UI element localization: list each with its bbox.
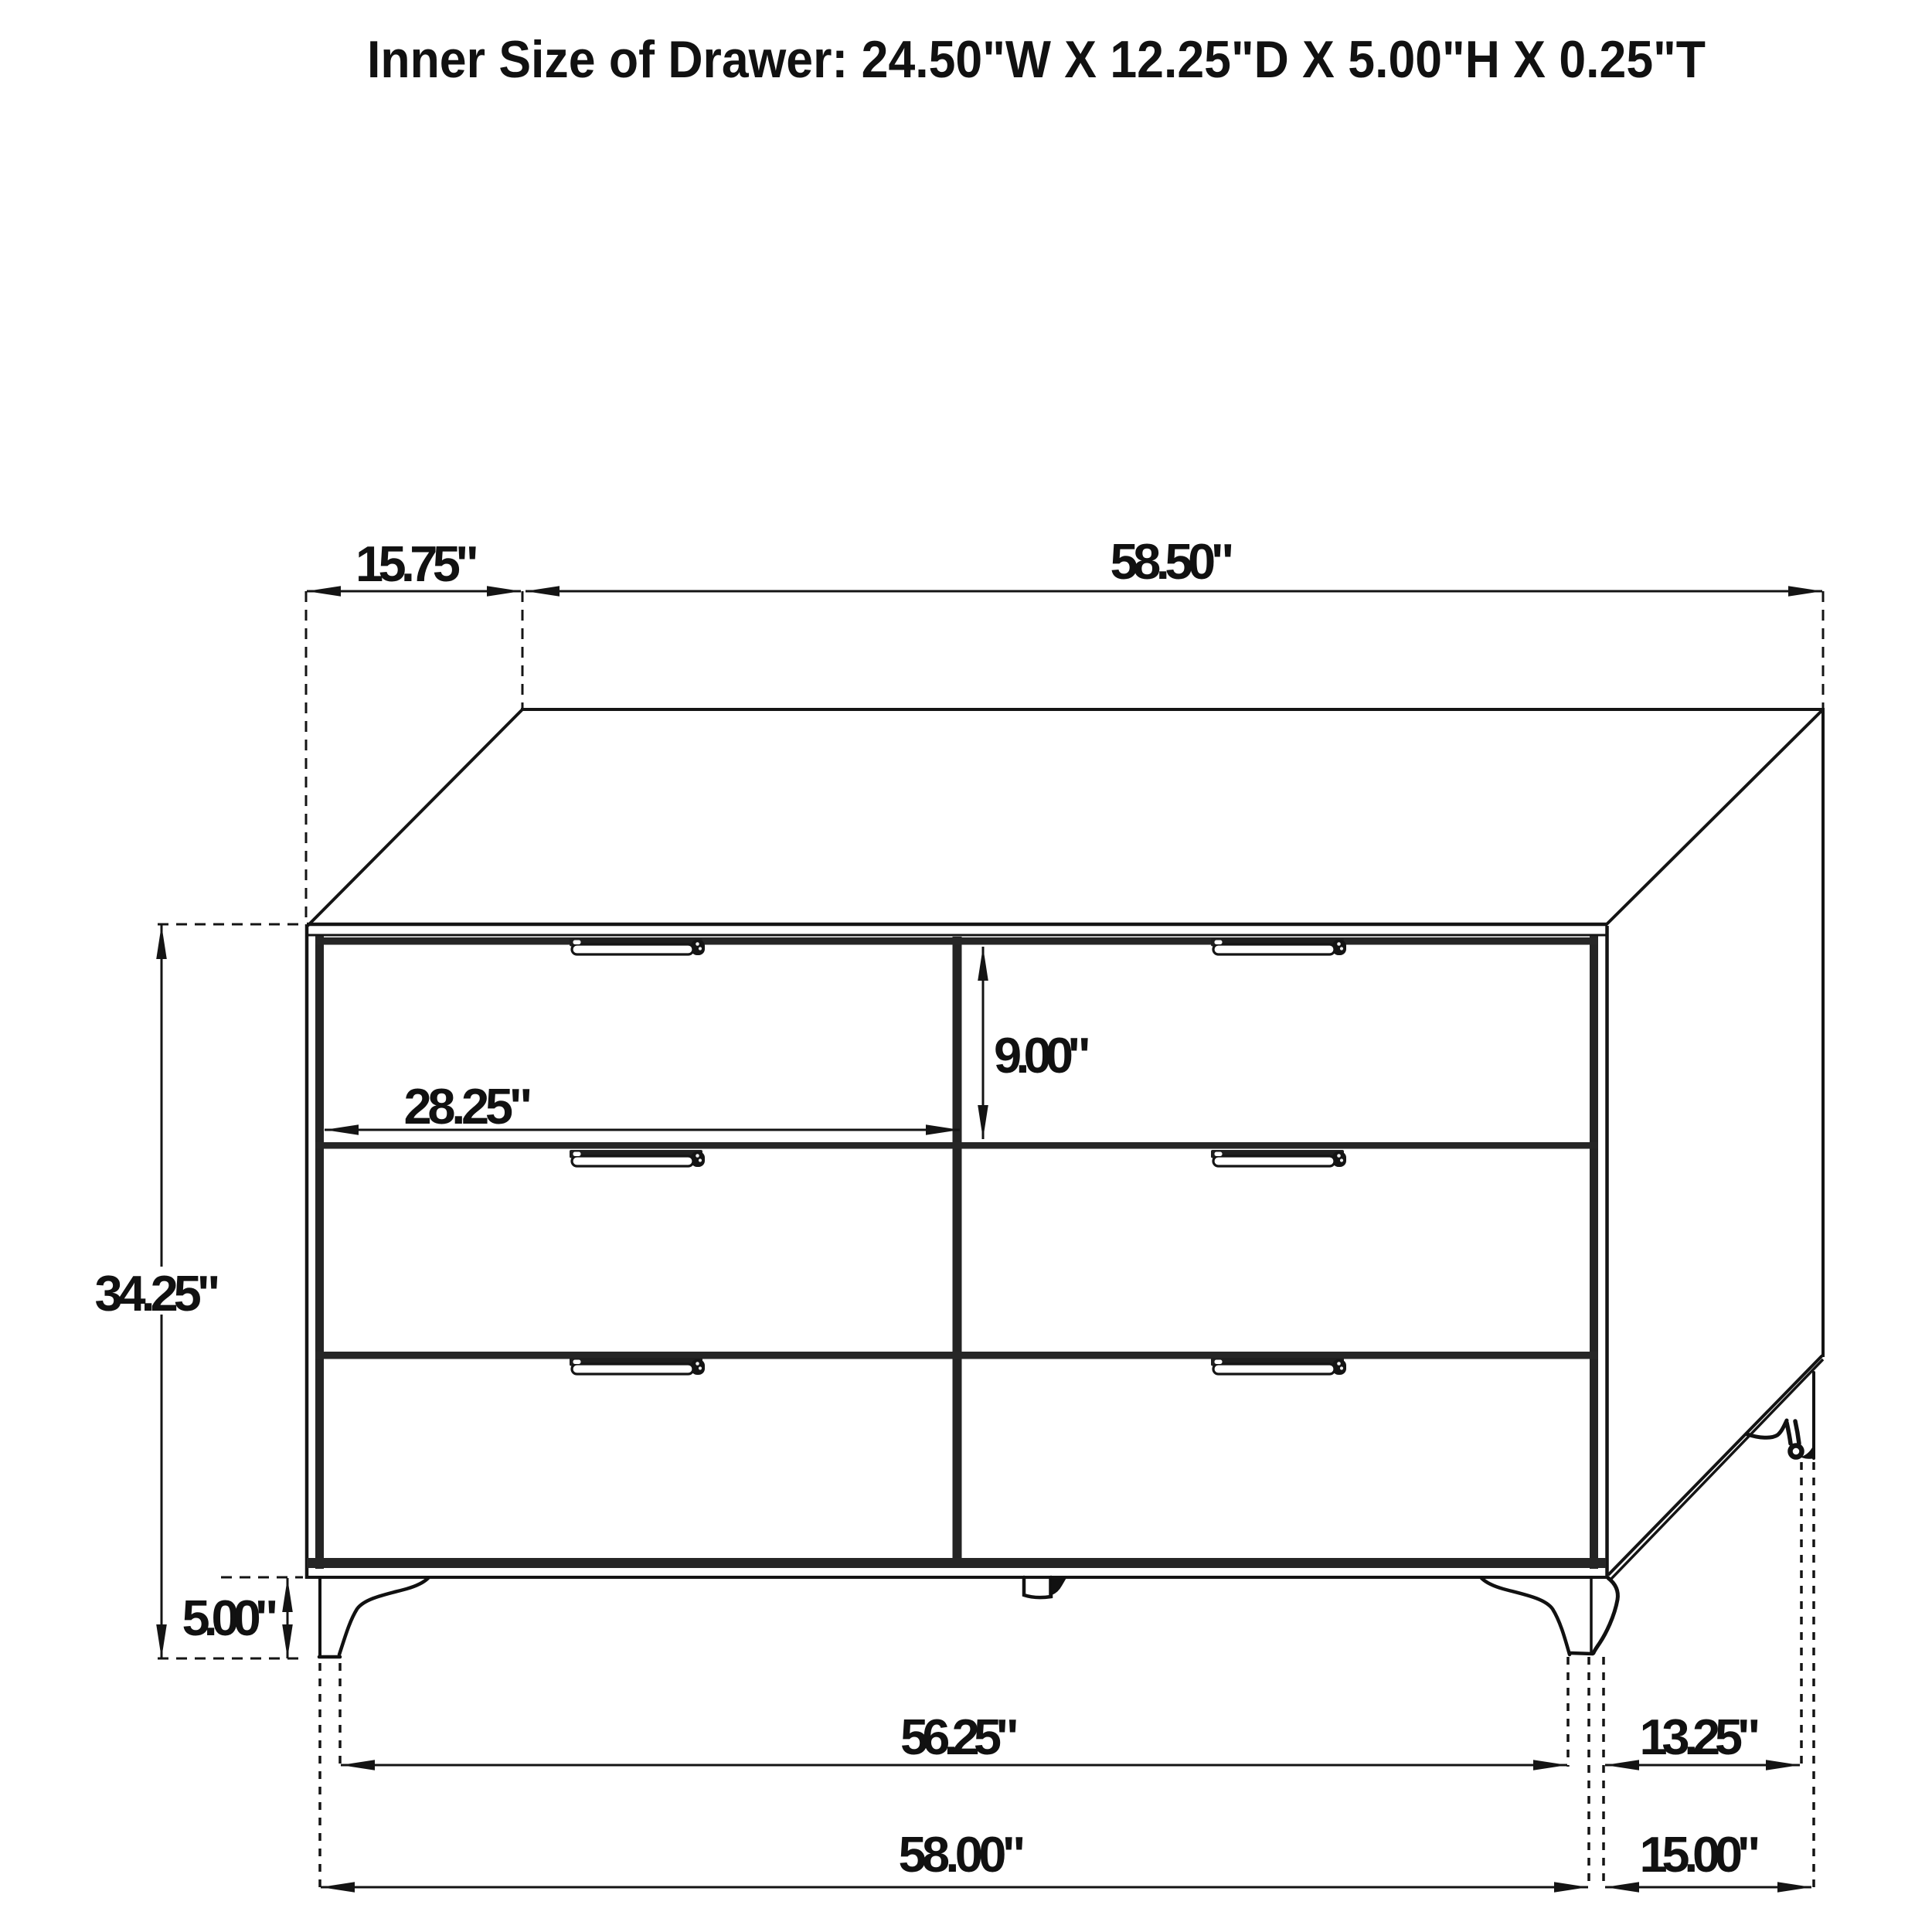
svg-text:28.25": 28.25"	[404, 1078, 533, 1134]
svg-text:13.25": 13.25"	[1640, 1709, 1761, 1765]
svg-text:9.00": 9.00"	[994, 1027, 1091, 1083]
svg-text:58.00": 58.00"	[899, 1826, 1026, 1883]
svg-text:56.25": 56.25"	[900, 1709, 1019, 1765]
svg-text:5.00": 5.00"	[182, 1590, 279, 1646]
svg-text:Inner Size of Drawer: 24.50"W: Inner Size of Drawer: 24.50"W X 12.25"D …	[367, 30, 1706, 89]
svg-text:58.50": 58.50"	[1111, 533, 1235, 590]
svg-text:15.75": 15.75"	[355, 536, 479, 592]
svg-text:15.00": 15.00"	[1640, 1826, 1761, 1883]
svg-text:34.25": 34.25"	[95, 1265, 221, 1321]
